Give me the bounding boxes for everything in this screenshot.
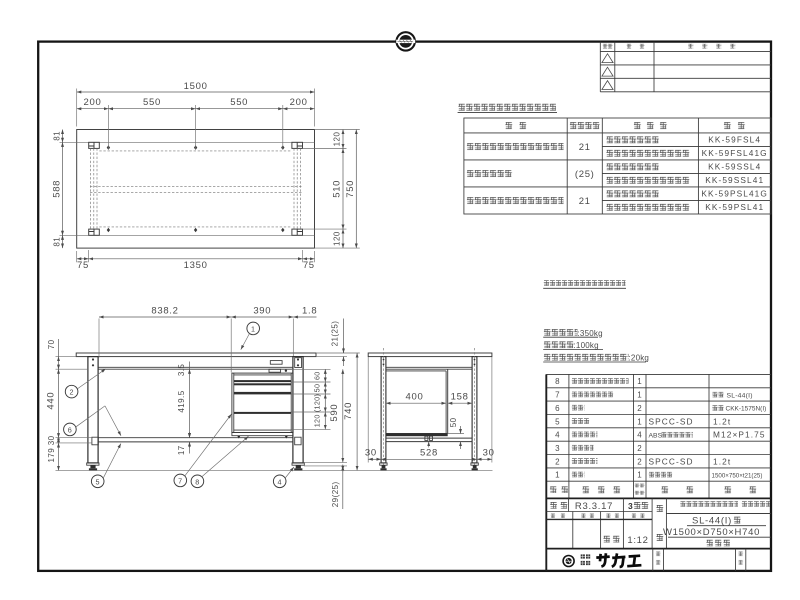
svg-text:30: 30 (483, 447, 495, 458)
svg-text:SPCC-SD: SPCC-SD (649, 416, 694, 426)
svg-text:1: 1 (637, 471, 642, 480)
svg-text:120: 120 (333, 231, 342, 246)
svg-text:400: 400 (406, 391, 424, 402)
svg-text:KK-59SSL4: KK-59SSL4 (708, 162, 761, 172)
svg-text:4: 4 (278, 477, 282, 486)
svg-text:CKK-1575N(I): CKK-1575N(I) (726, 406, 767, 413)
svg-text:21: 21 (579, 142, 591, 153)
svg-text:1.2t: 1.2t (713, 416, 731, 426)
svg-text:50: 50 (312, 384, 321, 393)
svg-text:KK-59SSL41: KK-59SSL41 (705, 175, 764, 185)
svg-text:2: 2 (637, 444, 642, 453)
svg-text:29(25): 29(25) (331, 481, 340, 507)
svg-text:R3.3.17: R3.3.17 (575, 501, 613, 512)
svg-text::350kg: :350kg (578, 329, 603, 338)
svg-text:30: 30 (365, 447, 377, 458)
svg-text:1500×750×t21(25): 1500×750×t21(25) (712, 472, 763, 479)
svg-text:2: 2 (69, 388, 73, 397)
svg-text:1350: 1350 (184, 260, 208, 271)
svg-text:4: 4 (555, 431, 560, 440)
svg-text:7: 7 (178, 476, 182, 485)
svg-text:588: 588 (51, 180, 62, 198)
svg-text:510: 510 (332, 180, 343, 198)
svg-text:7: 7 (555, 391, 560, 400)
svg-text:1:12: 1:12 (627, 535, 648, 546)
svg-text:440: 440 (46, 392, 57, 410)
svg-text:21(25): 21(25) (331, 321, 340, 347)
svg-text:1: 1 (637, 391, 642, 400)
svg-text:740: 740 (343, 402, 354, 420)
svg-text:KK-59PSL41G: KK-59PSL41G (701, 189, 768, 199)
svg-text:120: 120 (312, 414, 321, 427)
svg-text:1: 1 (637, 417, 642, 426)
svg-text:SL-44(I): SL-44(I) (727, 392, 753, 399)
svg-text:M12×P1.75: M12×P1.75 (713, 430, 766, 440)
svg-text:(25): (25) (575, 169, 595, 180)
svg-text:120: 120 (333, 132, 342, 147)
svg-text:30: 30 (47, 435, 56, 445)
svg-text:2: 2 (555, 457, 560, 466)
svg-text:550: 550 (230, 97, 248, 108)
svg-text:1: 1 (251, 324, 255, 333)
svg-text:3.5: 3.5 (177, 364, 186, 377)
svg-text:1.8: 1.8 (302, 305, 317, 316)
svg-text:390: 390 (253, 305, 271, 316)
svg-text:KK-59PSL41: KK-59PSL41 (705, 202, 764, 212)
svg-text:6: 6 (68, 425, 72, 434)
svg-text:419.5: 419.5 (177, 390, 186, 412)
svg-text:ABS: ABS (649, 432, 663, 439)
svg-text:1500: 1500 (184, 81, 208, 92)
svg-text:17: 17 (177, 445, 186, 455)
svg-text:4: 4 (637, 431, 642, 440)
svg-text:550: 550 (143, 97, 161, 108)
svg-text:8: 8 (195, 477, 199, 486)
svg-text:SPCC-SD: SPCC-SD (649, 456, 694, 466)
svg-text:179: 179 (47, 448, 56, 463)
svg-text:838.2: 838.2 (151, 305, 178, 316)
svg-text:81: 81 (52, 237, 61, 247)
svg-text:SL-44(I): SL-44(I) (692, 515, 732, 526)
svg-text:21: 21 (579, 196, 591, 207)
svg-text:75: 75 (303, 260, 315, 271)
svg-text:5: 5 (555, 417, 560, 426)
svg-text:8: 8 (555, 377, 560, 386)
svg-text:200: 200 (84, 97, 102, 108)
svg-text:75: 75 (77, 260, 89, 271)
svg-text:KK-59FSL41G: KK-59FSL41G (702, 148, 768, 158)
svg-text:590: 590 (329, 404, 340, 422)
svg-text:50: 50 (449, 417, 458, 427)
svg-text:2: 2 (637, 457, 642, 466)
svg-text:70: 70 (47, 339, 56, 349)
svg-text:3: 3 (555, 444, 560, 453)
svg-text:KK-59FSL4: KK-59FSL4 (708, 135, 761, 145)
svg-text:528: 528 (420, 447, 438, 458)
svg-text:750: 750 (345, 180, 356, 198)
svg-text:(120): (120) (312, 394, 321, 412)
svg-text:1: 1 (637, 377, 642, 386)
svg-text:158: 158 (451, 391, 469, 402)
svg-text:W1500×D750×H740: W1500×D750×H740 (663, 527, 760, 538)
svg-text:2: 2 (637, 404, 642, 413)
svg-text:1.2t: 1.2t (713, 456, 731, 466)
svg-text:81: 81 (52, 131, 61, 141)
svg-text:60: 60 (312, 371, 321, 380)
svg-text:6: 6 (555, 404, 560, 413)
svg-text::100kg: :100kg (574, 341, 599, 350)
svg-text:5: 5 (96, 477, 100, 486)
svg-text::20kg: :20kg (629, 354, 650, 363)
svg-text:3: 3 (628, 501, 633, 511)
svg-text:200: 200 (290, 97, 308, 108)
svg-text:1: 1 (555, 471, 560, 480)
